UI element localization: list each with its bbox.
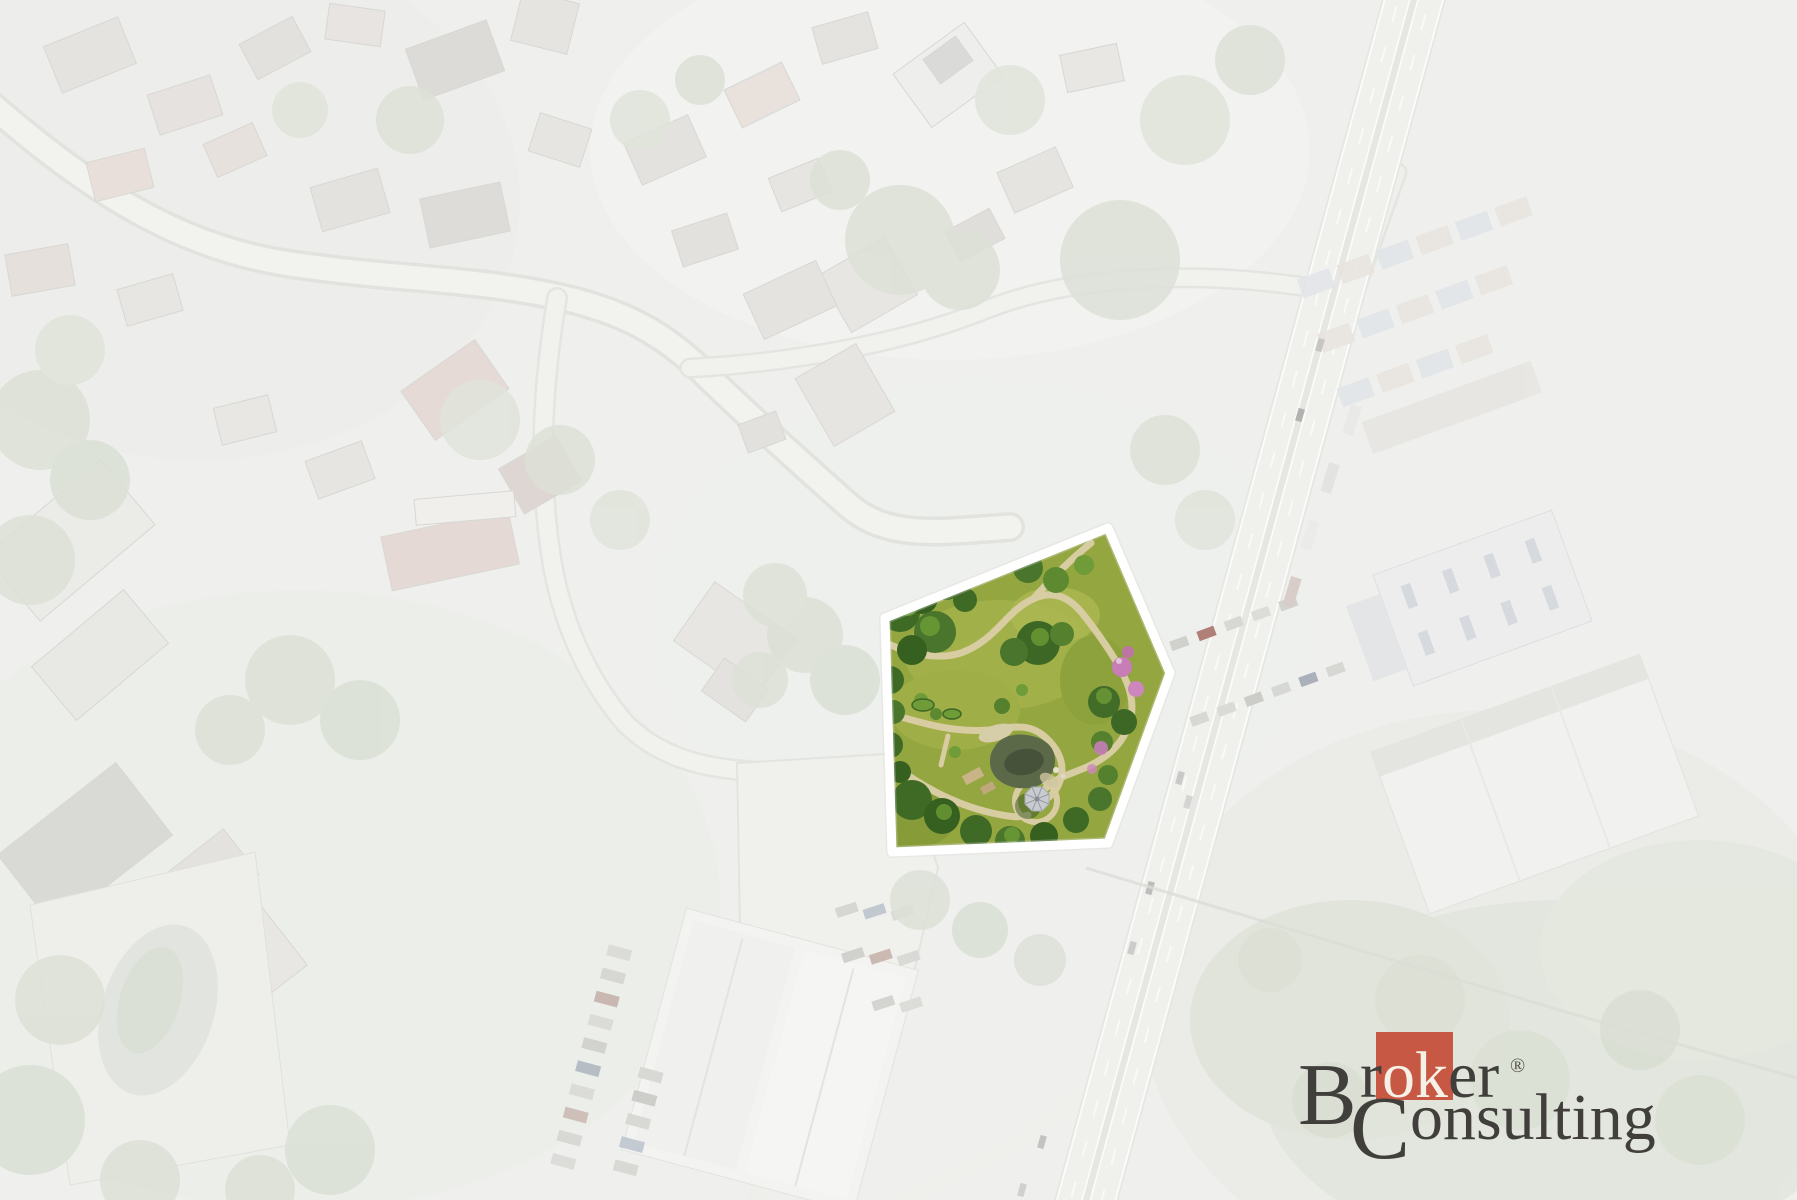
brand-word2-rest: onsulting xyxy=(1410,1081,1656,1154)
brand-word1-initial: B xyxy=(1298,1047,1357,1144)
brand-word2-initial: C xyxy=(1350,1079,1410,1178)
aerial-map: B roker ® C onsulting xyxy=(0,0,1797,1200)
registered-mark: ® xyxy=(1510,1055,1525,1077)
listing-hero-image: B roker ® C onsulting xyxy=(0,0,1797,1200)
